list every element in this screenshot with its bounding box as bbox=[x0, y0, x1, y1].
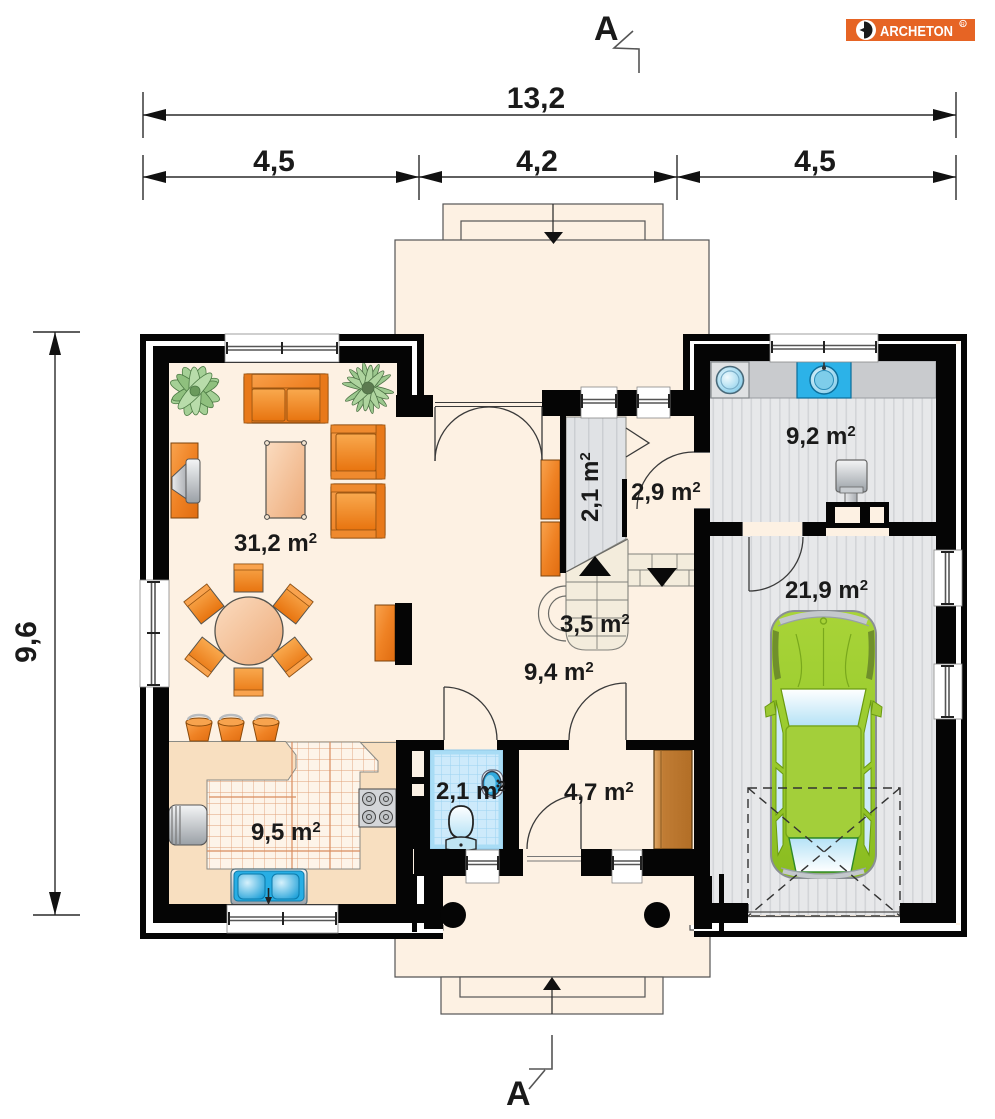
svg-text:13,2: 13,2 bbox=[507, 82, 565, 115]
svg-text:2,9 m2: 2,9 m2 bbox=[631, 479, 701, 506]
svg-text:2,1 m2: 2,1 m2 bbox=[577, 452, 604, 522]
svg-text:A: A bbox=[506, 1075, 531, 1113]
svg-text:4,5: 4,5 bbox=[253, 145, 295, 178]
svg-text:2,1 m2: 2,1 m2 bbox=[436, 778, 506, 805]
svg-text:9,6: 9,6 bbox=[10, 621, 43, 663]
svg-text:9,2 m2: 9,2 m2 bbox=[786, 423, 856, 450]
svg-text:21,9 m2: 21,9 m2 bbox=[785, 577, 868, 604]
svg-text:31,2 m2: 31,2 m2 bbox=[234, 530, 317, 557]
svg-text:R: R bbox=[961, 22, 965, 28]
svg-text:9,4 m2: 9,4 m2 bbox=[524, 659, 594, 686]
svg-text:3,5 m2: 3,5 m2 bbox=[560, 611, 630, 638]
svg-text:A: A bbox=[594, 10, 619, 48]
svg-text:4,7 m2: 4,7 m2 bbox=[564, 779, 634, 806]
svg-text:4,5: 4,5 bbox=[794, 145, 836, 178]
svg-text:4,2: 4,2 bbox=[516, 145, 558, 178]
svg-text:ARCHETON: ARCHETON bbox=[880, 23, 953, 40]
svg-text:9,5 m2: 9,5 m2 bbox=[251, 819, 321, 846]
